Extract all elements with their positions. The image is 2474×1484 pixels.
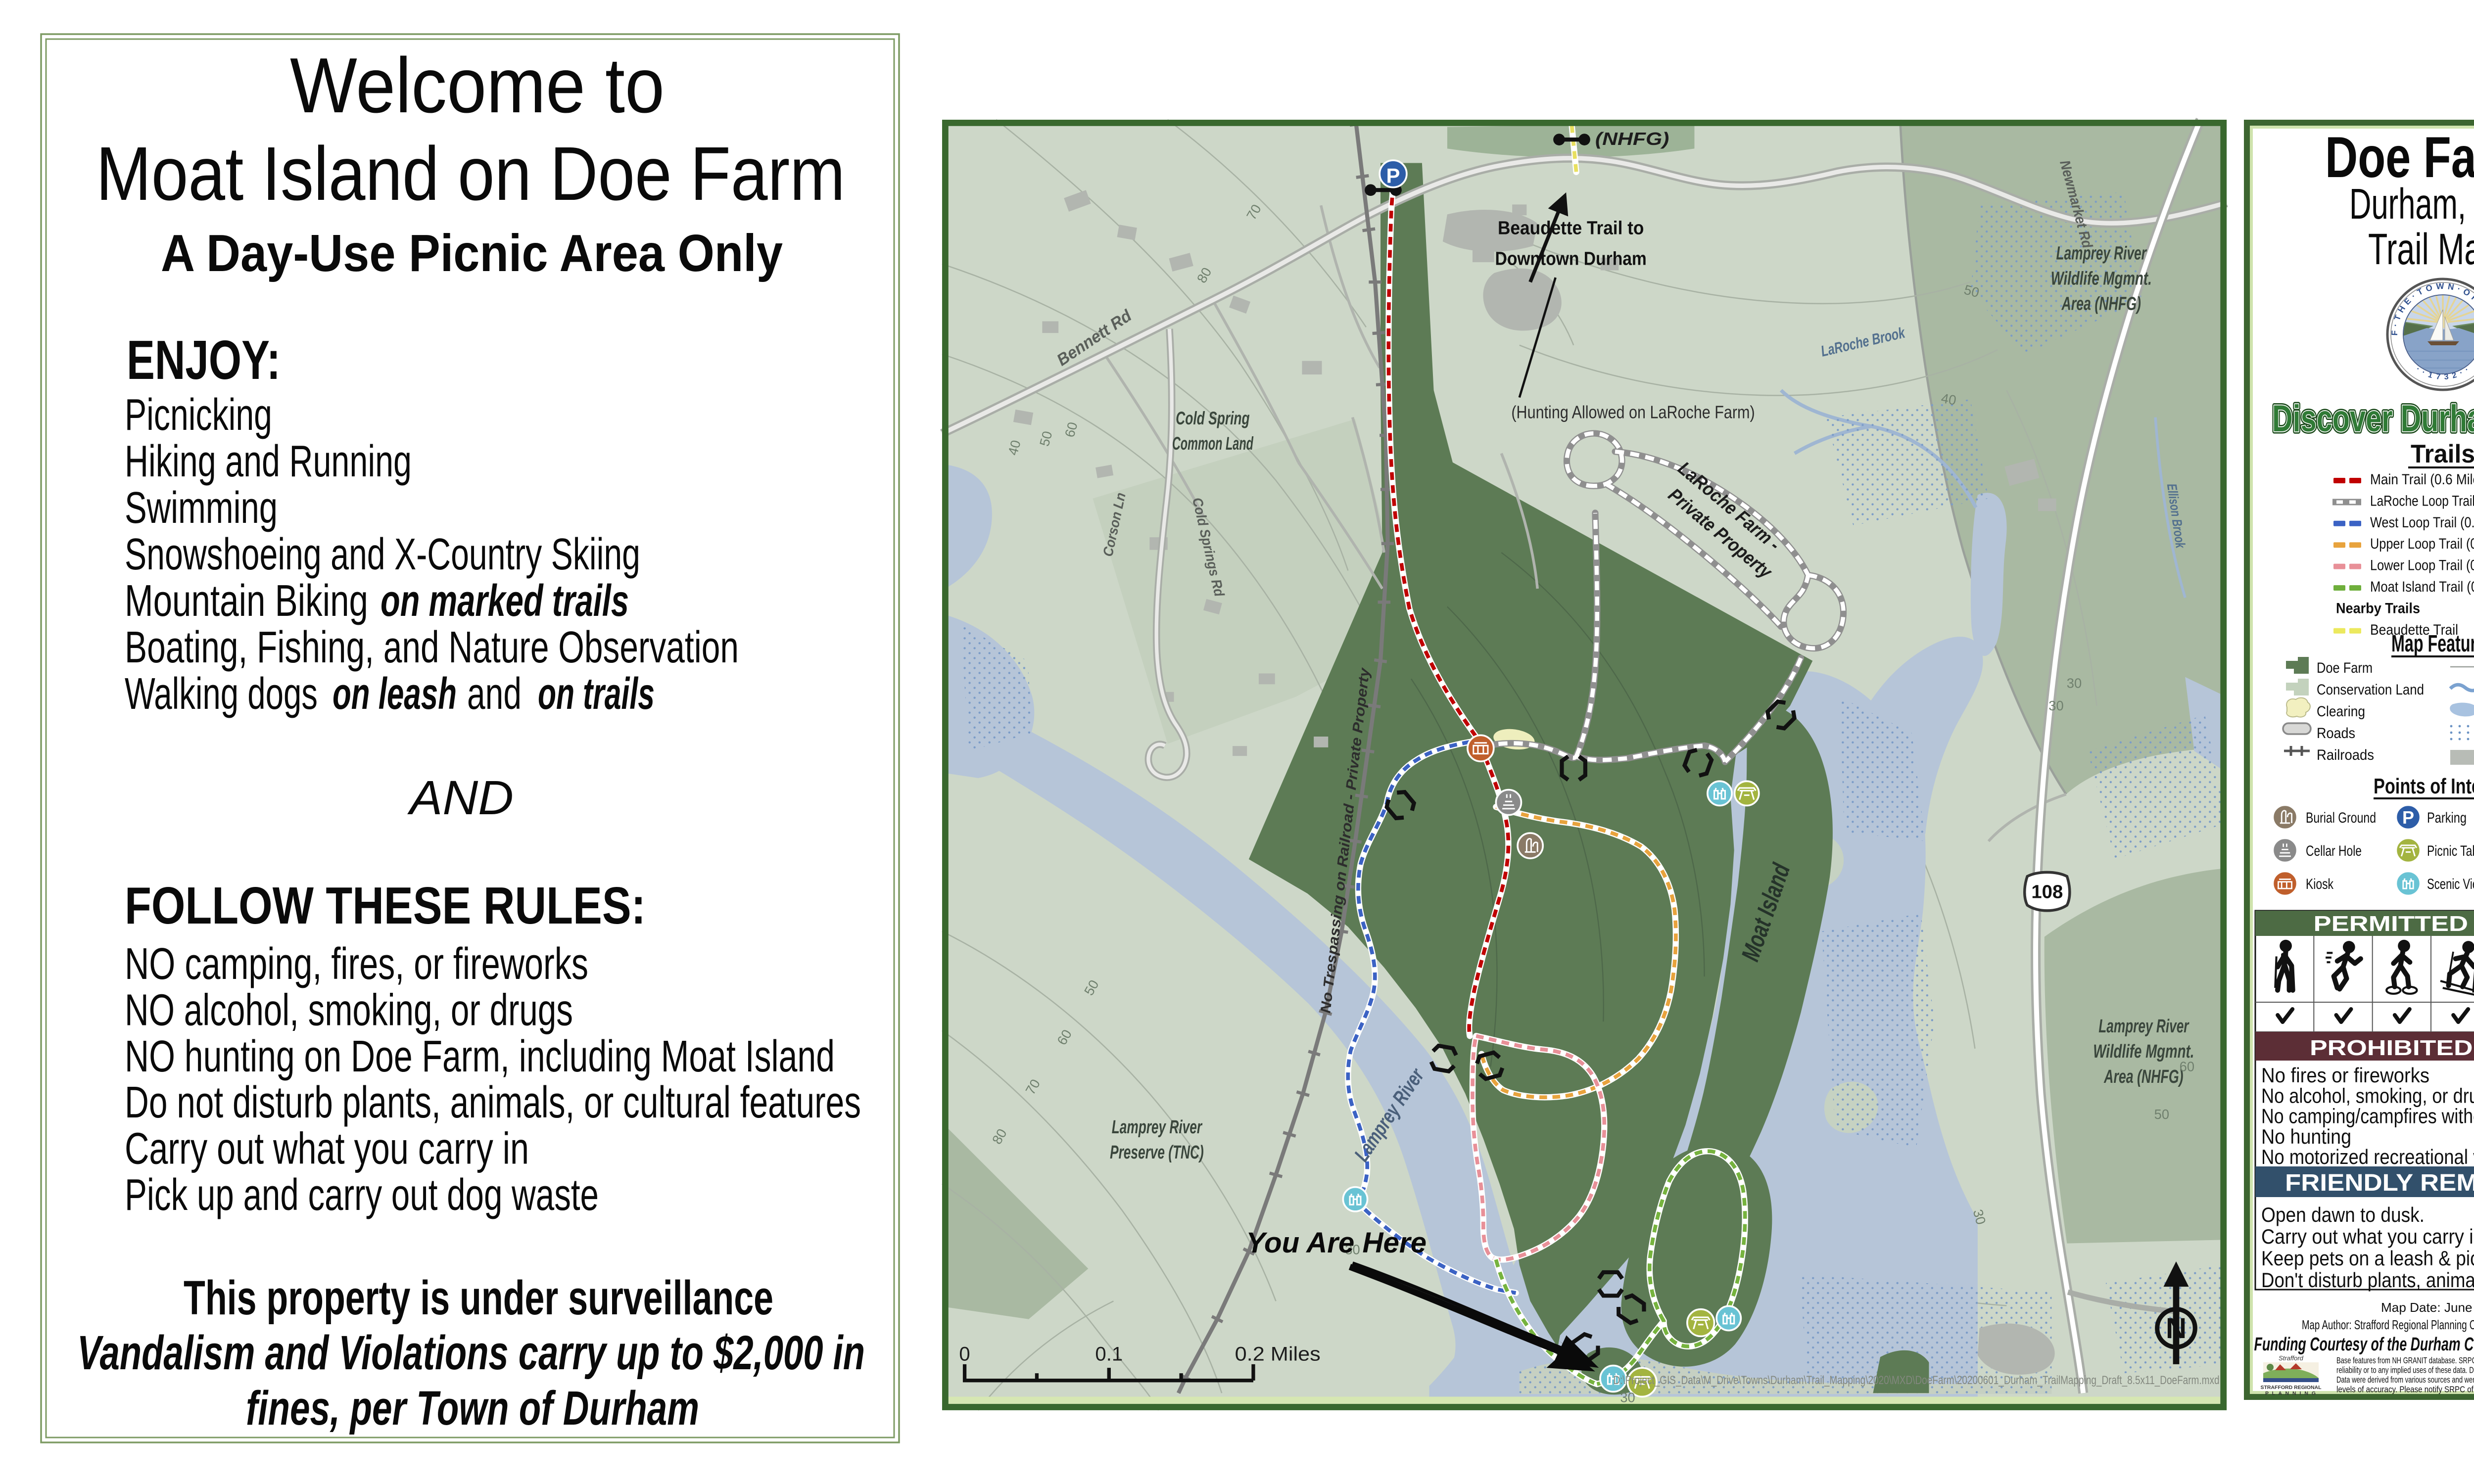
svg-text:West Loop Trail (0.4 Miles): West Loop Trail (0.4 Miles) (2370, 514, 2474, 531)
svg-text:Cellar Hole: Cellar Hole (2306, 843, 2362, 859)
svg-text:Points of Interest: Points of Interest (2374, 774, 2474, 798)
svg-text:Walking dogs: Walking dogs (125, 669, 318, 719)
svg-text:and: and (467, 669, 522, 719)
svg-text:Lamprey River: Lamprey River (2098, 1016, 2189, 1037)
svg-text:No alcohol, smoking, or drugs: No alcohol, smoking, or drugs (2261, 1084, 2474, 1107)
svg-text:Nearby Trails: Nearby Trails (2336, 600, 2420, 616)
svg-text:Pick up and carry out dog wast: Pick up and carry out dog waste (125, 1170, 599, 1220)
svg-text:on marked trails: on marked trails (381, 576, 629, 626)
svg-text:Scenic View: Scenic View (2427, 876, 2474, 892)
svg-text:P: P (1386, 164, 1400, 187)
svg-text:Strafford: Strafford (2279, 1354, 2304, 1362)
svg-text:NO camping, fires, or firework: NO camping, fires, or fireworks (125, 939, 588, 989)
svg-text:You Are Here: You Are Here (1246, 1227, 1427, 1259)
svg-text:Area (NHFG): Area (NHFG) (2061, 293, 2141, 315)
svg-text:50: 50 (2154, 1107, 2169, 1122)
svg-text:P L A N N I N G: P L A N N I N G (2265, 1391, 2317, 1396)
svg-text:NO alcohol, smoking, or drugs: NO alcohol, smoking, or drugs (125, 985, 573, 1035)
svg-text:Cold Spring: Cold Spring (1176, 408, 1250, 428)
svg-text:60: 60 (2180, 1059, 2194, 1074)
svg-text:N: N (2166, 1312, 2187, 1345)
svg-text:Area (NHFG): Area (NHFG) (2103, 1066, 2183, 1087)
svg-text:108: 108 (2031, 881, 2063, 902)
svg-text:Hiking and Running: Hiking and Running (125, 437, 412, 486)
svg-text:D:\Project_GIS_Data\M_Drive\To: D:\Project_GIS_Data\M_Drive\Towns\Durham… (1613, 1374, 2219, 1387)
svg-text:Wildlife Mgmnt.: Wildlife Mgmnt. (2051, 268, 2152, 289)
svg-text:Burial Ground: Burial Ground (2306, 810, 2376, 826)
svg-text:Boating, Fishing, and Nature O: Boating, Fishing, and Nature Observation (125, 623, 739, 672)
svg-text:A Day-Use Picnic Area Only: A Day-Use Picnic Area Only (161, 224, 783, 282)
svg-text:Picnicking: Picnicking (125, 390, 272, 440)
svg-text:Funding Courtesy of the Durham: Funding Courtesy of the Durham Conservat… (2254, 1334, 2474, 1355)
svg-text:on trails: on trails (538, 669, 655, 719)
svg-text:STRAFFORD REGIONAL: STRAFFORD REGIONAL (2260, 1385, 2322, 1391)
svg-text:Open dawn to dusk.: Open dawn to dusk. (2261, 1203, 2425, 1226)
svg-text:Keep pets on a leash & pick up: Keep pets on a leash & pick up dog waste… (2261, 1247, 2474, 1270)
svg-text:fines, per Town of Durham: fines, per Town of Durham (246, 1381, 699, 1435)
svg-text:Main Trail (0.6 Miles): Main Trail (0.6 Miles) (2370, 471, 2474, 488)
svg-text:Kiosk: Kiosk (2306, 876, 2334, 892)
svg-text:Welcome to: Welcome to (290, 42, 665, 129)
svg-text:Moat Island Trail (0.5 Miles): Moat Island Trail (0.5 Miles) (2370, 579, 2474, 595)
svg-text:Upper Loop Trail (0.4 Miles): Upper Loop Trail (0.4 Miles) (2370, 536, 2474, 552)
svg-text:Clearing: Clearing (2317, 703, 2365, 720)
svg-text:NO hunting on Doe Farm, includ: NO hunting on Doe Farm, including Moat I… (125, 1032, 835, 1081)
svg-text:0: 0 (959, 1344, 970, 1365)
svg-text:PERMITTED USES: PERMITTED USES (2314, 912, 2474, 936)
svg-text:on leash: on leash (333, 669, 457, 719)
svg-text:0.1: 0.1 (1095, 1344, 1123, 1365)
svg-text:FOLLOW THESE RULES:: FOLLOW THESE RULES: (125, 877, 646, 935)
svg-text:ENJOY:: ENJOY: (127, 329, 281, 391)
svg-text:Mountain Biking: Mountain Biking (125, 576, 368, 626)
svg-text:Picnic Table: Picnic Table (2427, 843, 2474, 859)
svg-text:Railroads: Railroads (2317, 747, 2374, 763)
svg-text:Carry out what you carry in: Carry out what you carry in (125, 1124, 529, 1174)
svg-text:Discover Durham's Trails: Discover Durham's Trails (2272, 398, 2474, 440)
svg-text:PROHIBITED USES: PROHIBITED USES (2310, 1036, 2474, 1060)
svg-text:No hunting: No hunting (2261, 1125, 2351, 1148)
svg-text:AND: AND (407, 771, 514, 825)
svg-text:Vandalism and Violations carry: Vandalism and Violations carry up to $2,… (77, 1326, 865, 1380)
svg-text:Conservation Land: Conservation Land (2317, 682, 2424, 698)
svg-text:Data were derived from various: Data were derived from various sources a… (2336, 1375, 2474, 1385)
svg-text:Map Author: Strafford Regional: Map Author: Strafford Regional Planning … (2302, 1317, 2474, 1332)
svg-text:Don't disturb plants, animals: Don't disturb plants, animals or cultura… (2261, 1268, 2474, 1292)
svg-text:Lamprey River: Lamprey River (1112, 1116, 1203, 1138)
svg-text:Parking: Parking (2427, 810, 2467, 826)
svg-text:LaRoche Loop Trail (1 Mile): LaRoche Loop Trail (1 Mile) (2370, 493, 2474, 509)
svg-text:Snowshoeing and X-Country Skii: Snowshoeing and X-Country Skiing (125, 530, 640, 579)
svg-text:Swimming: Swimming (125, 483, 278, 533)
svg-text:Doe Farm: Doe Farm (2317, 660, 2373, 676)
svg-text:Trail Map: Trail Map (2368, 224, 2474, 274)
svg-text:reliability or to any implied: reliability or to any implied uses of th… (2336, 1365, 2474, 1375)
svg-text:No camping/campfires without p: No camping/campfires without permission (2261, 1105, 2474, 1128)
svg-text:0.2 Miles: 0.2 Miles (1235, 1344, 1321, 1365)
svg-text:FRIENDLY REMINDERS: FRIENDLY REMINDERS (2285, 1170, 2474, 1196)
svg-text:Moat Island on Doe Farm: Moat Island on Doe Farm (96, 131, 845, 216)
svg-text:levels of accuracy. Please no: levels of accuracy. Please notify SRPC o… (2336, 1385, 2474, 1394)
svg-text:Durham, NH: Durham, NH (2349, 180, 2474, 228)
svg-text:Map Date: June 2020: Map Date: June 2020 (2381, 1300, 2474, 1315)
svg-text:40: 40 (1940, 390, 1957, 408)
svg-text:(NHFG): (NHFG) (1595, 129, 1669, 149)
svg-text:Beaudette Trail to: Beaudette Trail to (1498, 218, 1644, 239)
svg-text:Do not disturb plants, animals: Do not disturb plants, animals, or cultu… (125, 1078, 861, 1127)
svg-text:Preserve (TNC): Preserve (TNC) (1110, 1142, 1204, 1163)
svg-text:Downtown Durham: Downtown Durham (1495, 248, 1647, 270)
svg-text:No motorized recreational vehi: No motorized recreational vehicles (2261, 1145, 2474, 1168)
svg-text:30: 30 (2048, 698, 2063, 713)
svg-text:Map Features: Map Features (2391, 631, 2474, 657)
svg-text:Base features from NH GRANIT d: Base features from NH GRANIT database. S… (2336, 1355, 2474, 1365)
svg-text:Trails: Trails (2411, 440, 2474, 468)
svg-text:Roads: Roads (2317, 725, 2355, 742)
svg-text:This property is under surveil: This property is under surveillance (184, 1271, 773, 1325)
svg-text:Common Land: Common Land (1172, 433, 1254, 454)
svg-text:30: 30 (1620, 1390, 1635, 1405)
svg-text:No fires or fireworks: No fires or fireworks (2261, 1064, 2429, 1087)
svg-text:Lamprey River: Lamprey River (2056, 243, 2147, 264)
svg-text:Lower Loop Trail (0.3 Miles): Lower Loop Trail (0.3 Miles) (2370, 557, 2474, 574)
svg-text:P: P (2402, 807, 2414, 828)
svg-text:(Hunting Allowed on LaRoche Fa: (Hunting Allowed on LaRoche Farm) (1511, 402, 1755, 422)
svg-text:Carry out what you carry in.: Carry out what you carry in. (2261, 1225, 2474, 1248)
svg-text:30: 30 (2067, 676, 2082, 691)
